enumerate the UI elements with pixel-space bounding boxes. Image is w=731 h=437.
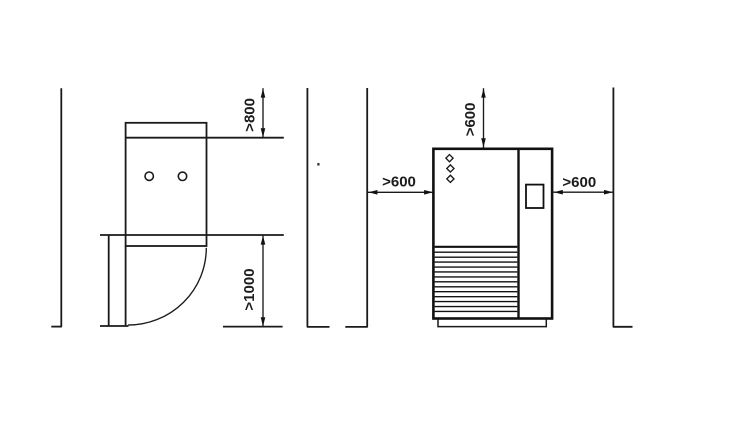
svg-text:>800: >800 bbox=[242, 98, 259, 132]
svg-text:>1000: >1000 bbox=[241, 268, 258, 310]
svg-text:>600: >600 bbox=[462, 103, 479, 137]
svg-text:>600: >600 bbox=[382, 174, 416, 191]
svg-text:>600: >600 bbox=[562, 174, 596, 191]
